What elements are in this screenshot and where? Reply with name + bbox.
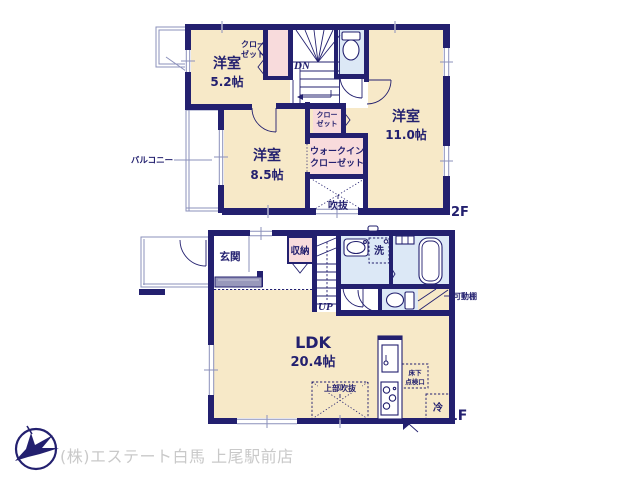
upper-void-label: 上部吹抜 [324, 383, 357, 393]
wash-label: 洗 [374, 244, 384, 257]
room-85-size: 8.5帖 [250, 167, 283, 182]
closet-mid-label-1: クロー [317, 110, 338, 119]
floorplan-drawing: 洋室 5.2帖 クロー ゼット DN 洋室 11.0帖 クロー ゼット ウォーク… [0, 0, 640, 480]
floor1-label: 1F [448, 408, 467, 424]
floor2-plan: 洋室 5.2帖 クロー ゼット DN 洋室 11.0帖 クロー ゼット ウォーク… [131, 21, 469, 220]
wic-label-2: クローゼット [310, 157, 364, 169]
floor1-plan: 玄関 収納 洗 UP LDK 20.4帖 可動棚 上部吹抜 床下 点検口 冷 1… [139, 226, 477, 432]
company-logo [15, 426, 59, 469]
fridge-label: 冷 [433, 401, 443, 414]
toilet-icon-2f [342, 32, 360, 60]
underfloor-label-1: 床下 [409, 368, 423, 377]
room-52-name: 洋室 [213, 55, 241, 72]
footer: (株)エステート白馬 上尾駅前店 [15, 426, 294, 469]
room-52-size: 5.2帖 [210, 74, 243, 89]
closet-upper-2f [266, 30, 290, 76]
entrance-step [215, 277, 262, 287]
stairs-up-label: UP [318, 301, 333, 313]
void-label: 吹抜 [328, 199, 349, 212]
eaves-box [156, 27, 186, 71]
floorplan-page: 洋室 5.2帖 クロー ゼット DN 洋室 11.0帖 クロー ゼット ウォーク… [0, 0, 640, 480]
ldk-size: 20.4帖 [290, 354, 335, 370]
washbasin-icon [344, 239, 368, 256]
room-110-name: 洋室 [392, 108, 420, 125]
company-name: (株)エステート白馬 上尾駅前店 [60, 447, 294, 466]
movable-shelf-label: 可動棚 [453, 291, 477, 301]
balcony-label: バルコニー [131, 155, 173, 166]
closet-mid-label-2: ゼット [317, 119, 338, 128]
ldk-name: LDK [295, 333, 331, 352]
porch [141, 237, 211, 287]
floor2-label: 2F [451, 205, 469, 220]
underfloor-label-2: 点検口 [405, 377, 425, 386]
entrance-label: 玄関 [220, 250, 241, 263]
closet-upper-label-1: クロー [241, 39, 265, 49]
storage-label: 収納 [290, 245, 309, 257]
kitchen-sink-icon [382, 345, 398, 372]
wic-label-1: ウォークイン [310, 146, 364, 157]
room-110-size: 11.0帖 [385, 127, 427, 142]
stairs-down-label: DN [293, 60, 311, 72]
room-85-name: 洋室 [253, 147, 281, 164]
closet-upper-label-2: ゼット [241, 49, 265, 59]
